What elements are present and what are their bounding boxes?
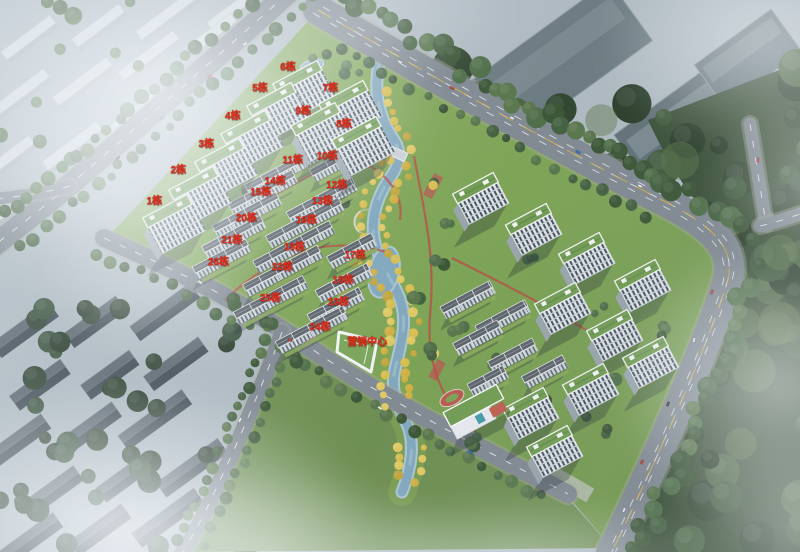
scene-shape <box>674 125 692 143</box>
scene-shape <box>394 443 399 448</box>
scene-shape <box>362 0 370 8</box>
scene-shape <box>233 57 239 63</box>
scene-shape <box>691 198 701 208</box>
scene-shape <box>391 255 396 260</box>
scene-shape <box>221 493 227 499</box>
scene-shape <box>597 184 603 190</box>
scene-shape <box>78 301 87 310</box>
scene-shape <box>288 13 293 18</box>
scene-shape <box>771 190 786 205</box>
scene-shape <box>198 297 205 304</box>
scene-shape <box>585 131 591 137</box>
scene-shape <box>616 87 636 107</box>
scene-shape <box>722 208 733 219</box>
scene-shape <box>90 491 98 499</box>
scene-shape <box>624 157 631 164</box>
scene-shape <box>113 160 118 165</box>
scene-shape <box>421 445 424 448</box>
scene-shape <box>207 78 214 85</box>
scene-shape <box>712 138 721 147</box>
scene-shape <box>225 481 231 487</box>
scene-shape <box>699 378 709 388</box>
scene-shape <box>712 368 721 377</box>
scene-shape <box>689 417 696 424</box>
scene-shape <box>691 483 712 504</box>
scene-shape <box>636 162 646 172</box>
scene-shape <box>506 476 513 483</box>
scene-shape <box>261 402 266 407</box>
scene-shape <box>309 54 314 59</box>
scene-shape <box>150 85 156 91</box>
scene-shape <box>250 432 256 438</box>
scene-shape <box>683 182 691 190</box>
scene-shape <box>430 255 436 261</box>
scene-shape <box>528 109 539 120</box>
scene-shape <box>410 426 417 433</box>
scene-shape <box>195 87 201 93</box>
scene-shape <box>720 353 730 363</box>
scene-shape <box>180 523 185 528</box>
scene-shape <box>337 44 343 50</box>
scene-shape <box>729 319 736 326</box>
scene-shape <box>22 193 28 199</box>
scene-shape <box>601 303 605 307</box>
scene-shape <box>406 174 409 177</box>
scene-shape <box>58 535 69 546</box>
scene-shape <box>131 459 142 470</box>
scene-shape <box>524 103 531 110</box>
scene-shape <box>246 369 250 373</box>
scene-shape <box>457 110 462 115</box>
scene-shape <box>408 292 415 299</box>
scene-shape <box>15 484 23 492</box>
scene-shape <box>419 455 423 459</box>
scene-shape <box>379 224 383 228</box>
scene-shape <box>545 104 556 115</box>
scene-shape <box>231 469 236 474</box>
scene-shape <box>428 351 433 356</box>
scene-shape <box>762 235 797 270</box>
scene-shape <box>404 133 408 137</box>
scene-shape <box>394 179 398 183</box>
scene-shape <box>190 503 195 508</box>
scene-shape <box>88 430 99 441</box>
scene-shape <box>382 359 386 363</box>
scene-shape <box>651 517 660 526</box>
scene-shape <box>66 8 75 17</box>
scene-shape <box>395 125 399 129</box>
scene-shape <box>92 250 98 256</box>
scene-shape <box>40 433 46 439</box>
scene-shape <box>261 336 266 341</box>
scene-shape <box>397 414 402 419</box>
scene-shape <box>185 97 190 102</box>
scene-shape <box>364 58 370 64</box>
scene-shape <box>569 123 578 132</box>
scene-shape <box>425 343 432 350</box>
scene-shape <box>107 378 118 389</box>
scene-shape <box>409 308 414 313</box>
scene-shape <box>612 374 616 378</box>
scene-shape <box>424 429 430 435</box>
scene-shape <box>35 300 46 311</box>
scene-shape <box>215 507 221 513</box>
scene-shape <box>213 446 218 451</box>
scene-shape <box>82 145 89 152</box>
scene-shape <box>371 269 375 273</box>
scene-shape <box>291 356 298 363</box>
scene-shape <box>725 428 757 460</box>
scene-shape <box>401 369 406 374</box>
scene-shape <box>387 300 392 305</box>
scene-shape <box>273 378 278 383</box>
scene-shape <box>725 332 734 341</box>
scene-shape <box>340 69 346 75</box>
scene-shape <box>137 266 142 271</box>
scene-shape <box>25 368 37 380</box>
scene-shape <box>605 140 612 147</box>
scene-shape <box>404 84 410 90</box>
scene-shape <box>613 144 621 152</box>
scene-shape <box>441 219 446 224</box>
scene-shape <box>56 444 66 454</box>
scene-shape <box>221 22 226 27</box>
scene-shape <box>135 90 142 97</box>
scene-shape <box>478 463 483 468</box>
scene-shape <box>550 165 555 170</box>
scene-shape <box>12 201 19 208</box>
scene-shape <box>321 377 327 383</box>
scene-shape <box>234 402 238 406</box>
scene-shape <box>223 423 228 428</box>
scene-shape <box>495 472 500 477</box>
scene-shape <box>112 300 122 310</box>
scene-shape <box>429 181 434 186</box>
scene-shape <box>759 302 800 344</box>
scene-shape <box>385 250 389 254</box>
scene-shape <box>228 412 233 417</box>
scene-shape <box>713 483 729 499</box>
scene-shape <box>42 172 49 179</box>
scene-shape <box>404 37 411 44</box>
scene-shape <box>171 62 178 69</box>
scene-shape <box>675 468 685 478</box>
scene-shape <box>377 383 381 387</box>
scene-shape <box>581 180 587 186</box>
scene-shape <box>394 471 399 476</box>
scene-shape <box>385 327 390 332</box>
scene-shape <box>15 241 21 247</box>
scene-shape <box>425 93 429 97</box>
scene-shape <box>360 201 364 205</box>
scene-shape <box>382 404 386 408</box>
scene-shape <box>267 318 274 325</box>
scene-shape <box>632 519 640 527</box>
scene-shape <box>54 211 61 218</box>
scene-shape <box>32 97 38 103</box>
scene-shape <box>79 192 85 198</box>
scene-shape <box>522 486 529 493</box>
scene-shape <box>152 132 157 137</box>
scene-shape <box>335 384 342 391</box>
scene-shape <box>448 327 454 333</box>
scene-shape <box>641 213 647 219</box>
scene-shape <box>500 84 509 93</box>
scene-shape <box>636 531 644 539</box>
scene-shape <box>488 126 494 132</box>
scene-shape <box>532 156 537 161</box>
scene-shape <box>627 200 633 206</box>
scene-shape <box>206 522 212 528</box>
scene-shape <box>661 324 666 329</box>
scene-shape <box>455 325 460 330</box>
scene-shape <box>128 152 134 158</box>
scene-shape <box>702 451 711 460</box>
scene-shape <box>406 392 410 396</box>
scene-shape <box>729 289 739 299</box>
scene-shape <box>161 74 168 81</box>
scene-shape <box>672 452 682 462</box>
scene-shape <box>743 524 761 542</box>
scene-shape <box>32 183 38 189</box>
scene-shape <box>386 206 389 209</box>
scene-shape <box>658 331 663 336</box>
scene-shape <box>105 257 111 263</box>
scene-shape <box>201 542 205 546</box>
scene-shape <box>399 20 406 27</box>
scene-shape <box>200 487 205 492</box>
scene-shape <box>593 139 601 147</box>
scene-shape <box>147 355 155 363</box>
scene-shape <box>121 103 128 110</box>
scene-shape <box>391 117 395 121</box>
scene-shape <box>440 105 445 110</box>
scene-shape <box>743 279 753 289</box>
scene-svg <box>0 0 800 552</box>
aerial-masterplan-rendering: 1栋2栋3栋4栋5栋6栋7栋8栋9栋10栋11栋12栋13栋14栋15栋16栋1… <box>0 0 800 552</box>
scene-shape <box>137 144 142 149</box>
scene-shape <box>111 48 117 54</box>
scene-shape <box>27 234 34 241</box>
scene-shape <box>689 427 696 434</box>
scene-shape <box>421 35 430 44</box>
scene-shape <box>358 223 362 227</box>
scene-shape <box>389 76 393 80</box>
scene-shape <box>352 392 358 398</box>
scene-shape <box>682 440 690 448</box>
scene-shape <box>626 542 632 548</box>
scene-shape <box>381 348 385 352</box>
scene-shape <box>241 459 246 464</box>
scene-shape <box>211 309 217 315</box>
scene-shape <box>610 196 616 202</box>
scene-shape <box>385 99 389 103</box>
scene-shape <box>406 285 411 290</box>
scene-shape <box>747 233 754 240</box>
scene-shape <box>34 136 41 143</box>
scene-shape <box>257 348 263 354</box>
scene-shape <box>409 329 414 334</box>
scene-shape <box>40 332 51 343</box>
scene-shape <box>108 173 112 177</box>
scene-shape <box>390 109 393 112</box>
scene-shape <box>407 145 412 150</box>
scene-shape <box>503 135 507 139</box>
scene-shape <box>251 359 255 363</box>
scene-shape <box>184 511 189 516</box>
scene-shape <box>786 109 797 120</box>
scene-shape <box>448 220 452 224</box>
scene-shape <box>71 151 77 157</box>
scene-shape <box>397 276 401 280</box>
scene-shape <box>787 283 800 296</box>
scene-shape <box>734 305 741 312</box>
scene-shape <box>382 371 387 376</box>
scene-shape <box>408 337 412 341</box>
scene-shape <box>471 58 482 69</box>
scene-shape <box>299 3 303 7</box>
scene-shape <box>516 143 521 148</box>
scene-shape <box>729 345 737 353</box>
scene-shape <box>124 447 133 456</box>
scene-shape <box>390 195 395 200</box>
scene-shape <box>490 84 497 91</box>
scene-shape <box>234 10 239 15</box>
scene-shape <box>243 446 248 451</box>
scene-shape <box>82 470 89 477</box>
scene-shape <box>248 45 253 50</box>
scene-shape <box>245 383 251 389</box>
scene-shape <box>102 126 107 131</box>
scene-shape <box>181 51 186 56</box>
scene-shape <box>120 263 125 268</box>
scene-shape <box>377 284 381 288</box>
scene-shape <box>203 476 208 481</box>
scene-shape <box>710 203 720 213</box>
scene-shape <box>446 47 454 55</box>
scene-shape <box>505 99 513 107</box>
scene-shape <box>168 279 174 285</box>
scene-shape <box>402 376 405 379</box>
scene-shape <box>323 50 328 55</box>
scene-shape <box>0 206 6 212</box>
scene-shape <box>383 292 388 297</box>
scene-shape <box>117 115 122 120</box>
scene-shape <box>645 169 653 177</box>
scene-shape <box>406 385 410 389</box>
scene-shape <box>646 502 655 511</box>
scene-shape <box>384 232 387 235</box>
scene-shape <box>222 68 229 75</box>
scene-shape <box>228 316 233 321</box>
scene-shape <box>664 478 673 487</box>
scene-shape <box>167 123 171 127</box>
scene-shape <box>359 213 362 216</box>
scene-shape <box>388 318 392 322</box>
scene-shape <box>263 34 269 40</box>
scene-shape <box>603 425 608 430</box>
scene-shape <box>52 333 62 343</box>
scene-shape <box>384 308 389 313</box>
scene-shape <box>661 142 699 180</box>
scene-shape <box>725 178 737 190</box>
scene-shape <box>446 447 451 452</box>
scene-shape <box>472 117 477 122</box>
scene-shape <box>652 175 662 185</box>
scene-shape <box>54 1 61 8</box>
scene-shape <box>401 359 406 364</box>
scene-shape <box>416 319 419 322</box>
scene-shape <box>56 44 62 50</box>
scene-shape <box>402 162 407 167</box>
scene-shape <box>362 189 365 192</box>
scene-shape <box>239 393 243 397</box>
car <box>757 158 760 163</box>
scene-shape <box>199 447 208 456</box>
scene-shape <box>150 274 155 279</box>
scene-shape <box>687 402 694 409</box>
scene-shape <box>383 243 386 246</box>
scene-shape <box>781 167 790 176</box>
scene-shape <box>93 178 100 185</box>
scene-shape <box>418 468 422 472</box>
scene-shape <box>29 398 37 406</box>
scene-shape <box>435 35 446 46</box>
scene-shape <box>42 221 48 227</box>
scene-shape <box>182 290 187 295</box>
scene-shape <box>480 80 487 87</box>
scene-shape <box>342 61 347 66</box>
scene-shape <box>411 479 415 483</box>
scene-shape <box>69 198 74 203</box>
scene-shape <box>663 181 674 192</box>
scene-shape <box>392 187 397 192</box>
scene-shape <box>208 463 214 469</box>
scene-shape <box>383 87 388 92</box>
scene-shape <box>206 34 213 41</box>
scene-shape <box>266 389 271 394</box>
scene-shape <box>553 118 562 127</box>
scene-shape <box>384 13 392 21</box>
scene-shape <box>150 537 161 548</box>
scene-shape <box>149 400 158 409</box>
scene-shape <box>648 487 655 494</box>
scene-shape <box>380 214 383 217</box>
scene-shape <box>224 435 229 440</box>
scene-shape <box>91 135 96 140</box>
scene-shape <box>315 367 320 372</box>
scene-shape <box>700 392 708 400</box>
scene-shape <box>129 392 140 403</box>
scene-shape <box>58 162 64 168</box>
scene-shape <box>354 53 358 57</box>
scene-shape <box>15 496 21 502</box>
scene-shape <box>454 70 461 77</box>
scene-shape <box>592 310 596 314</box>
scene-shape <box>411 350 414 353</box>
scene-shape <box>385 336 390 341</box>
scene-shape <box>381 392 385 396</box>
scene-shape <box>569 175 574 180</box>
scene-shape <box>735 217 743 225</box>
scene-shape <box>677 528 693 544</box>
scene-shape <box>657 110 665 118</box>
scene-shape <box>371 400 376 405</box>
scene-shape <box>378 8 384 14</box>
scene-shape <box>377 68 383 74</box>
scene-shape <box>395 461 400 466</box>
scene-shape <box>174 111 180 117</box>
